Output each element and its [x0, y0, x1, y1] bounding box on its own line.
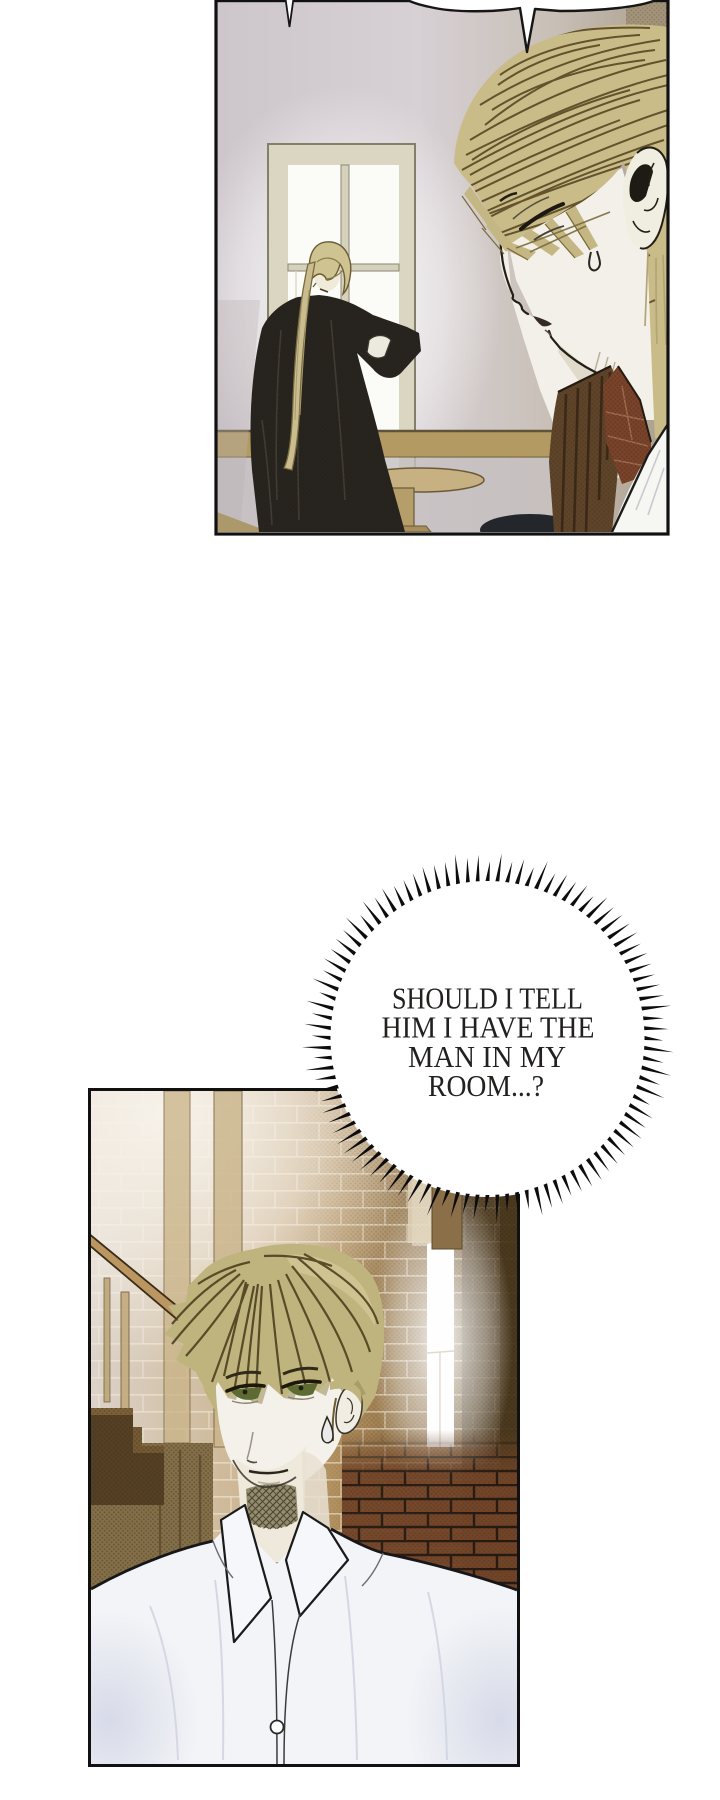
svg-text:ROOM...?: ROOM...? — [428, 1068, 544, 1103]
